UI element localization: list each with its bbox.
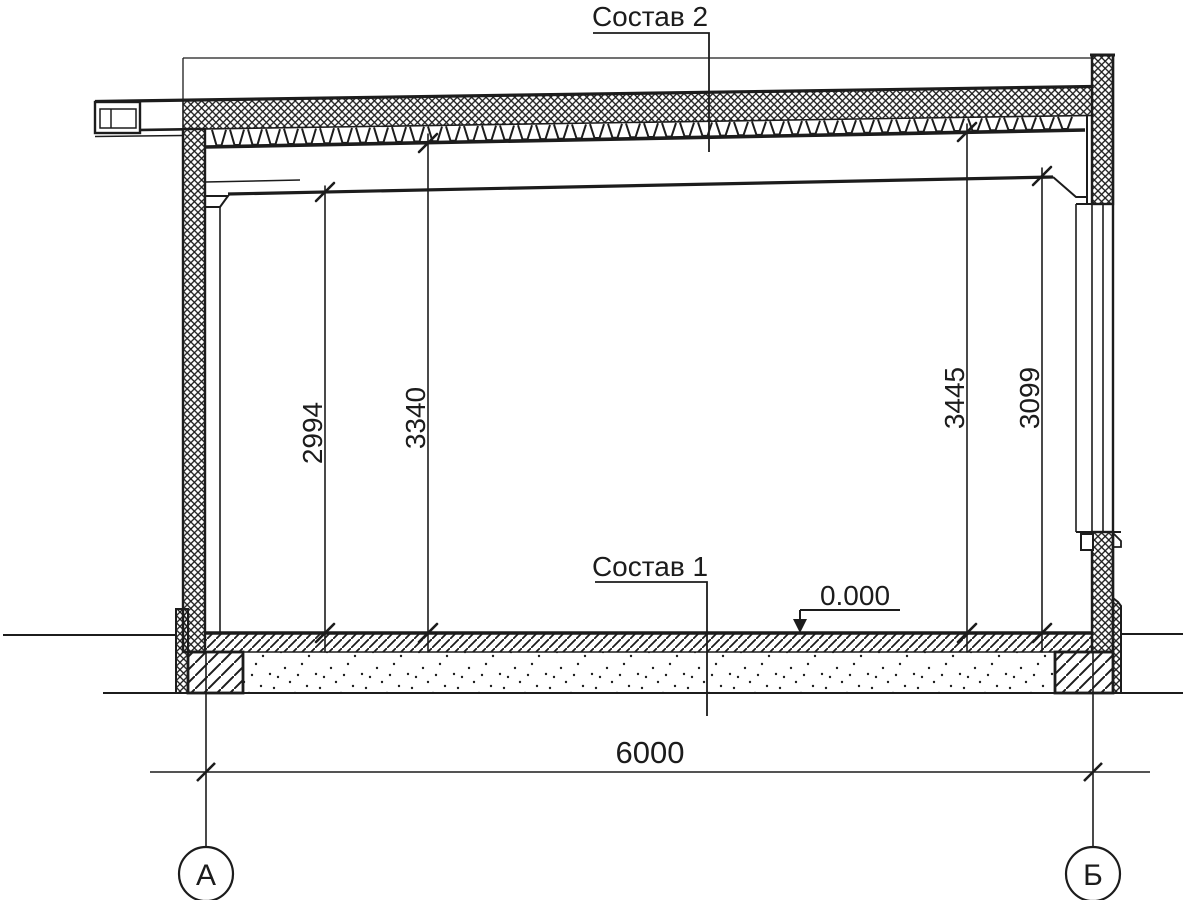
section-drawing: Состав 2 Состав 1 0.000 2994 3340 3445 3… bbox=[0, 0, 1200, 900]
axis-label-a: А bbox=[196, 859, 216, 892]
left-wall bbox=[176, 129, 300, 693]
foundation-block-right bbox=[1055, 652, 1113, 693]
callout-floor-label: Состав 1 bbox=[592, 551, 708, 582]
left-wall-plinth bbox=[176, 609, 188, 693]
level-mark-value: 0.000 bbox=[820, 580, 890, 611]
roof-beam-bottom-line bbox=[228, 177, 1053, 194]
right-wall-and-window bbox=[1076, 55, 1121, 693]
level-mark: 0.000 bbox=[793, 580, 900, 633]
dim-text-3340: 3340 bbox=[400, 387, 431, 449]
level-mark-arrow bbox=[793, 619, 807, 633]
left-ledge-line bbox=[205, 180, 300, 182]
left-beam-corbel bbox=[205, 196, 228, 207]
beam-end-bracket bbox=[1053, 177, 1087, 204]
dim-text-3445: 3445 bbox=[939, 367, 970, 429]
dim-text-6000: 6000 bbox=[616, 735, 685, 770]
underfloor-prep-layer bbox=[243, 652, 1055, 692]
dim-text-2994: 2994 bbox=[297, 402, 328, 464]
overhang-soffit-line-2 bbox=[95, 136, 183, 137]
callout-roof-label: Состав 2 bbox=[592, 1, 708, 32]
deck-bottom-chord bbox=[205, 130, 1085, 147]
section-drawing-page: Состав 2 Состав 1 0.000 2994 3340 3445 3… bbox=[0, 0, 1200, 900]
sill-bracket bbox=[1081, 534, 1093, 550]
roof-assembly bbox=[95, 58, 1092, 204]
axis-label-b: Б bbox=[1083, 859, 1103, 892]
dim-text-3099: 3099 bbox=[1014, 367, 1045, 429]
right-sill-wall bbox=[1092, 532, 1113, 652]
foundation-block-left bbox=[188, 652, 243, 693]
right-parapet bbox=[1092, 55, 1113, 204]
left-wall-body bbox=[183, 129, 205, 652]
